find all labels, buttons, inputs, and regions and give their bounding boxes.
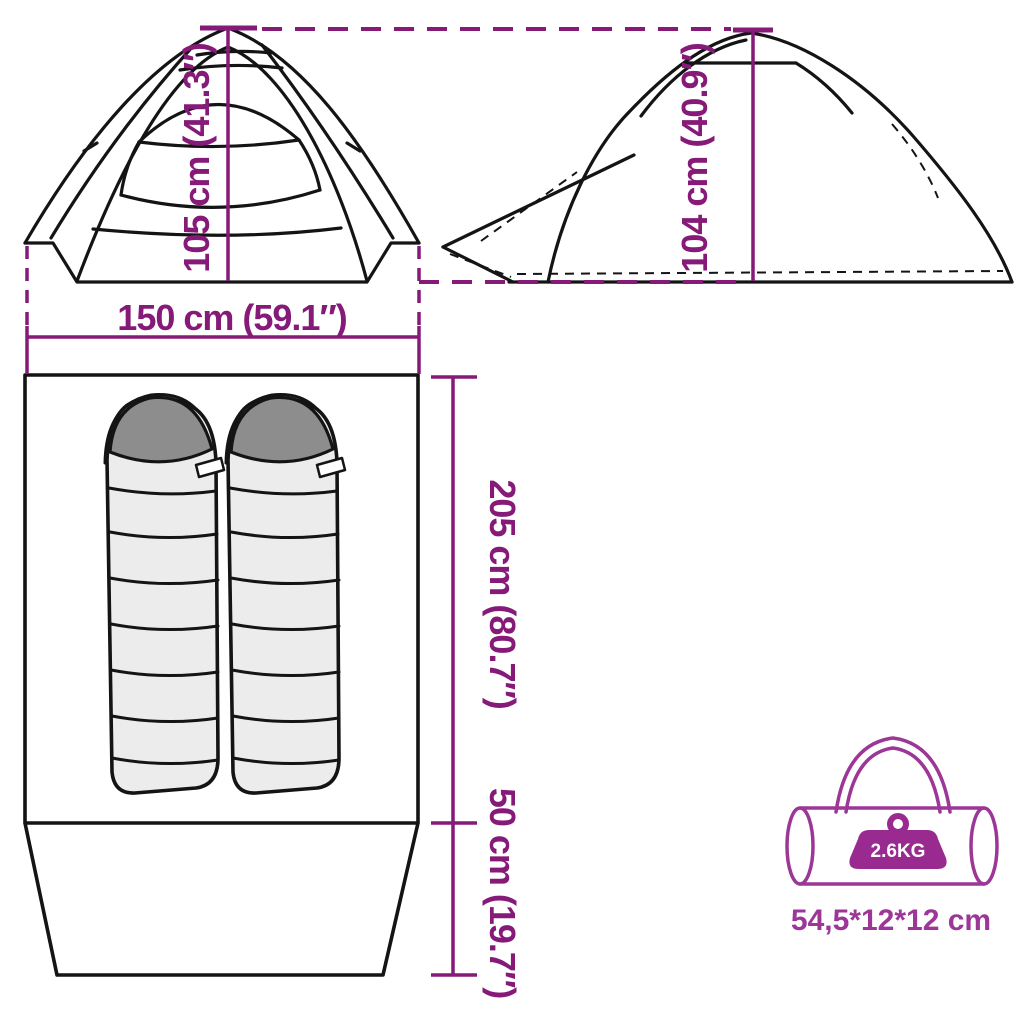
front-height-label: 105 cm (41.3″)	[176, 43, 217, 272]
side-height-label: 104 cm (40.9″)	[674, 43, 715, 272]
vestibule-outline	[25, 823, 418, 975]
sleeping-bag	[105, 395, 224, 793]
sleeping-bag	[226, 395, 345, 793]
front-width-label: 150 cm (59.1″)	[117, 297, 346, 338]
tent-dimension-diagram: 105 cm (41.3″) 150 cm (59.1″) 104 cm (40…	[0, 0, 1024, 1024]
bag-weight-label: 2.6KG	[871, 841, 926, 862]
tent-side-view	[443, 33, 1012, 282]
packed-bag: 2.6KG 54,5*12*12 cm	[787, 738, 997, 937]
bag-size-label: 54,5*12*12 cm	[791, 904, 991, 937]
tent-floorplan	[25, 375, 418, 975]
diagram-svg: 105 cm (41.3″) 150 cm (59.1″) 104 cm (40…	[0, 0, 1024, 1024]
tent-front-view	[25, 28, 419, 282]
floor-length-label: 205 cm (80.7″)	[482, 479, 523, 708]
weight-icon: 2.6KG	[849, 816, 946, 869]
vestibule-depth-label: 50 cm (19.7″)	[482, 788, 523, 998]
